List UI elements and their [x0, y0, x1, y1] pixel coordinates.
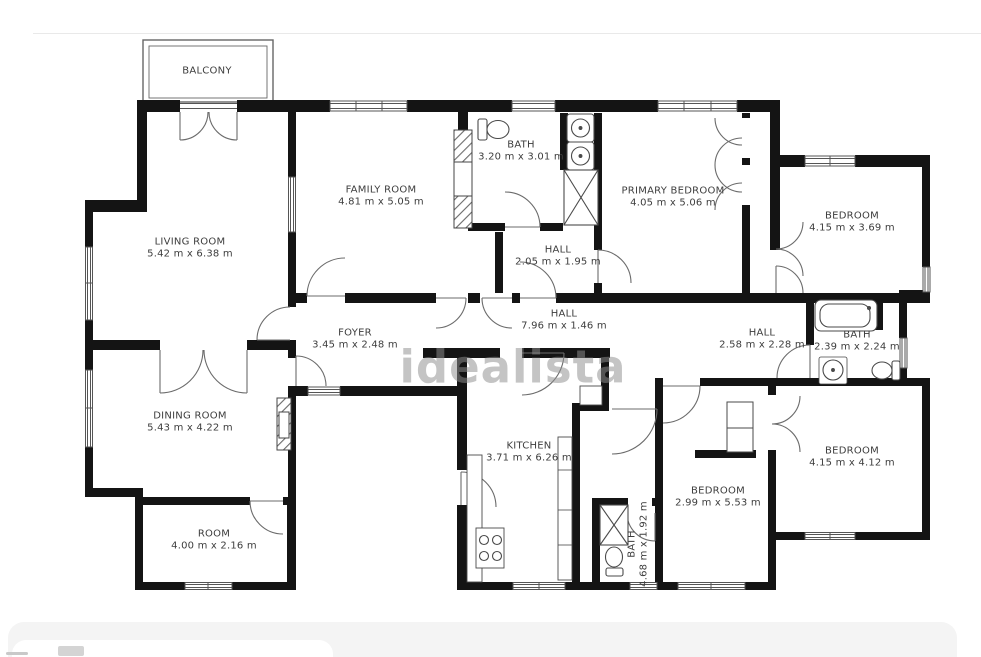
room-label-kitchen: KITCHEN3.71 m x 6.26 m — [486, 441, 572, 464]
sink-icon — [819, 357, 847, 384]
room-label-foyer: FOYER3.45 m x 2.48 m — [312, 328, 398, 351]
shower-icon — [564, 170, 598, 225]
room-label-hall-long: HALL7.96 m x 1.46 m — [521, 309, 607, 332]
bathtub-icon — [815, 300, 877, 331]
idealista-watermark: idealista — [399, 341, 626, 394]
room-label-bath-long: BATH4.68 m x 1.92 m — [627, 501, 650, 587]
door-arcs — [160, 112, 810, 541]
floorplan-drawing — [0, 0, 981, 657]
room-label-bedroom-top-right: BEDROOM4.15 m x 3.69 m — [809, 211, 895, 234]
room-label-dining-room: DINING ROOM5.43 m x 4.22 m — [147, 411, 233, 434]
room-label-living-room: LIVING ROOM5.42 m x 6.38 m — [147, 237, 233, 260]
room-label-bath-top: BATH3.20 m x 3.01 m — [478, 140, 564, 163]
room-label-hall-small: HALL2.05 m x 1.95 m — [515, 245, 601, 268]
room-label-family-room: FAMILY ROOM4.81 m x 5.05 m — [338, 185, 424, 208]
stove-icon — [476, 528, 504, 568]
toilet-icon — [478, 119, 509, 140]
floorplan-page: idealista BALCONY LIVING ROOM5.42 m x 6.… — [0, 0, 981, 657]
room-label-primary-bedroom: PRIMARY BEDROOM4.05 m x 5.06 m — [622, 186, 725, 209]
bottom-left-glyph — [6, 652, 28, 655]
toilet-icon — [872, 361, 900, 380]
room-label-hall-right: HALL2.58 m x 2.28 m — [719, 328, 805, 351]
room-label-bath-right: BATH2.39 m x 2.24 m — [814, 330, 900, 353]
hatched-builtins — [277, 130, 472, 450]
room-label-balcony: BALCONY — [182, 65, 231, 77]
shower-icon — [600, 505, 628, 545]
bottom-left-glyph — [58, 646, 84, 656]
toilet-icon — [606, 547, 624, 576]
sink-icon — [567, 142, 594, 170]
room-label-bedroom-bottom-mid: BEDROOM2.99 m x 5.53 m — [675, 486, 761, 509]
room-label-room: ROOM4.00 m x 2.16 m — [171, 529, 257, 552]
sink-icon — [567, 114, 594, 142]
wardrobe-icon — [727, 402, 753, 452]
room-label-bedroom-bottom-right: BEDROOM4.15 m x 4.12 m — [809, 446, 895, 469]
